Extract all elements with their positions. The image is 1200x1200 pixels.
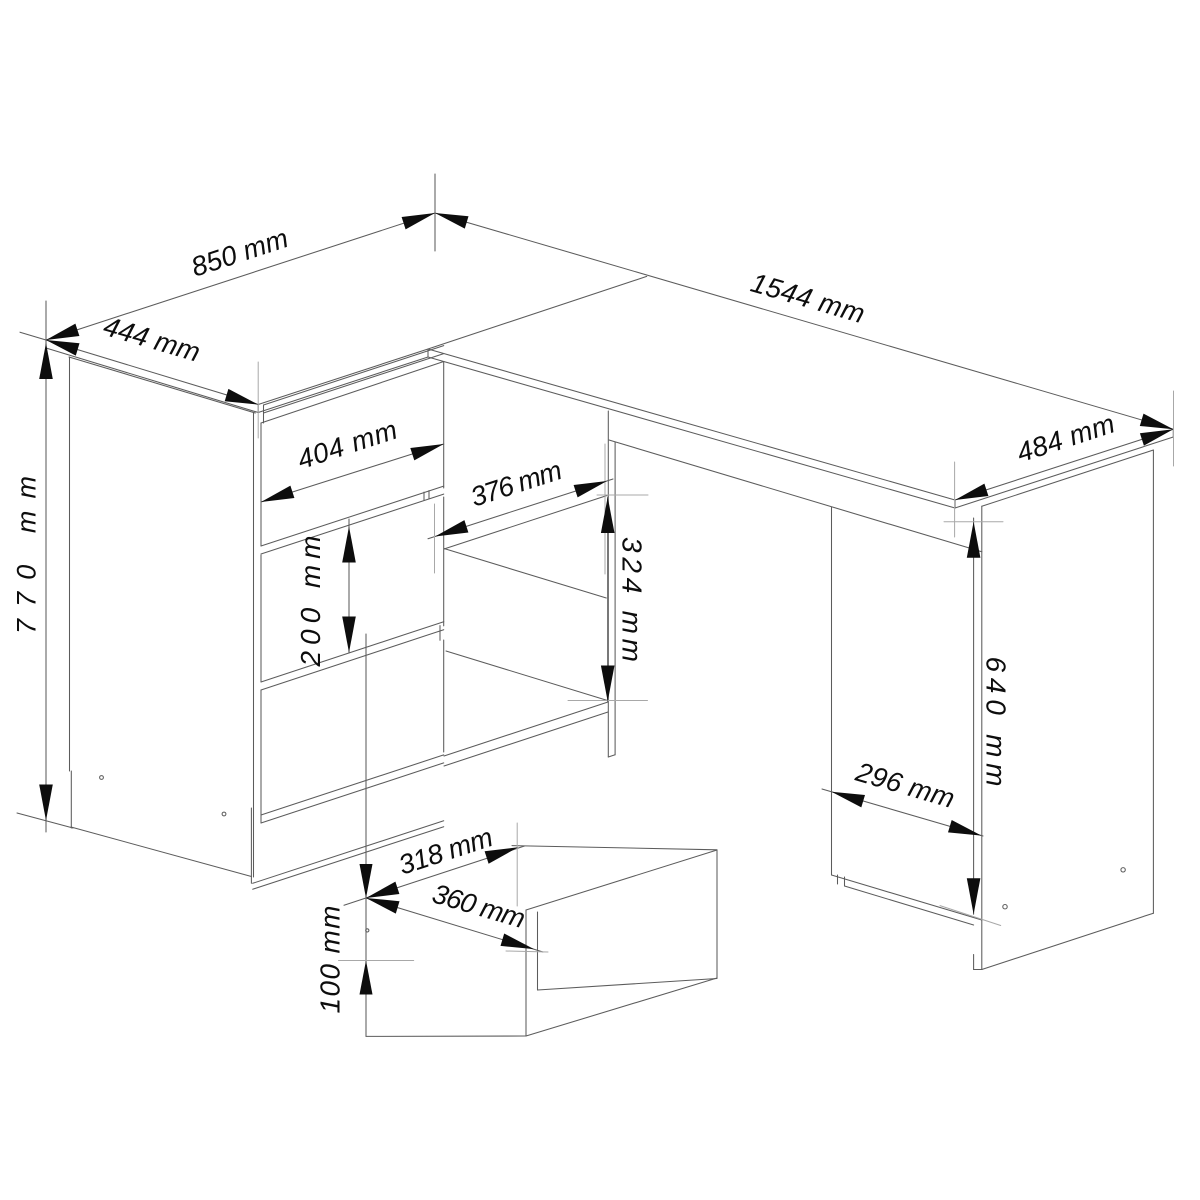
svg-text:100 mm: 100 mm	[315, 906, 346, 1014]
